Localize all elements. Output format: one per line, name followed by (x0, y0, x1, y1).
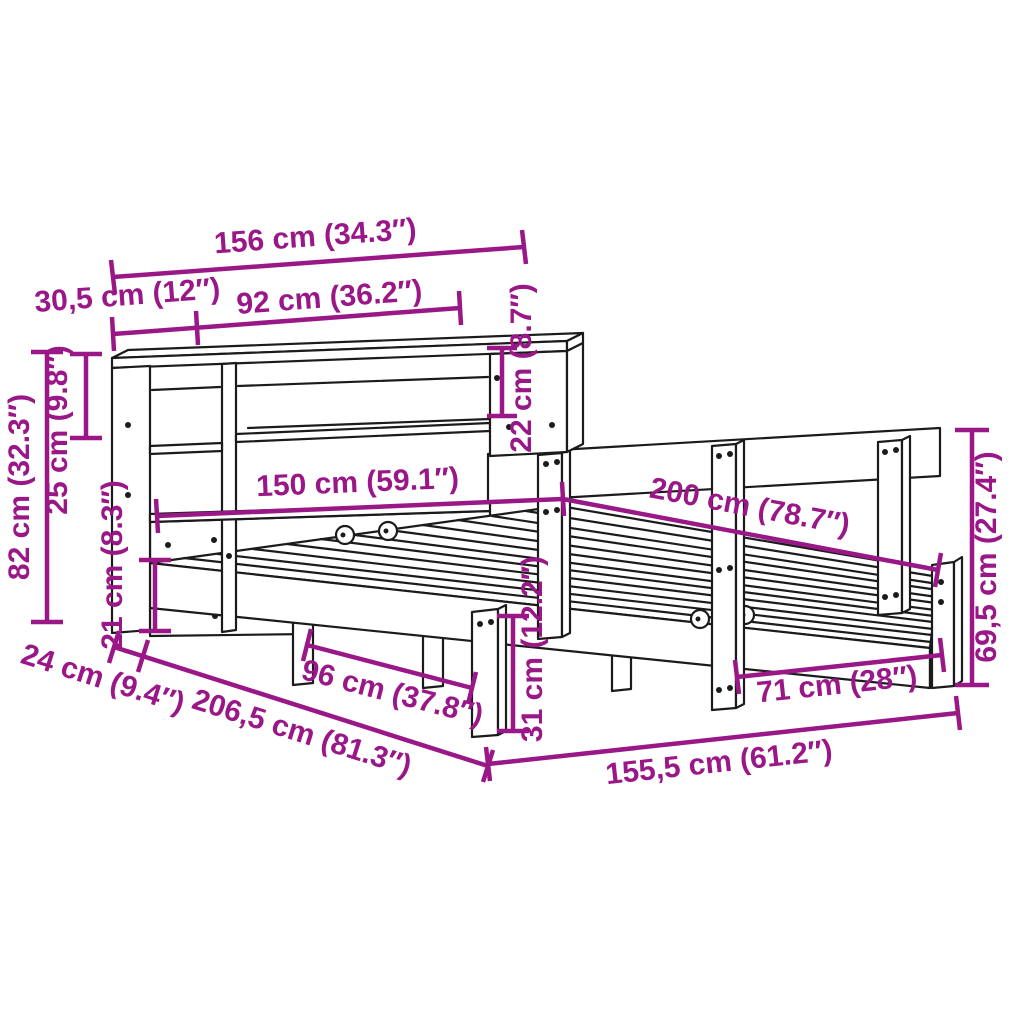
dim-label-156: 156 cm (34.3″) (213, 213, 418, 261)
dim-label-21: 21 cm (8.3″) (96, 480, 129, 649)
dim-label-25: 25 cm (9.8″) (41, 345, 74, 514)
dim-label-22: 22 cm (8.7″) (505, 283, 538, 452)
dim-label-31: 31 cm (12.2″) (516, 556, 549, 742)
diagram-canvas: 156 cm (34.3″) 30,5 cm (12″) 92 cm (36.2… (0, 0, 1024, 1024)
dim-label-30-5: 30,5 cm (12″) (33, 272, 221, 319)
dim-label-69-5: 69,5 cm (27.4″) (970, 451, 1003, 662)
dim-25-line (70, 354, 102, 438)
dim-label-150: 150 cm (59.1″) (256, 462, 460, 503)
dim-label-82: 82 cm (32.3″) (3, 394, 36, 580)
rail-post-middle (712, 440, 744, 710)
dim-label-155-5: 155,5 cm (61.2″) (604, 734, 834, 791)
bed-dimension-diagram: 156 cm (34.3″) 30,5 cm (12″) 92 cm (36.2… (0, 0, 1024, 1024)
rail-post-right (878, 436, 910, 615)
